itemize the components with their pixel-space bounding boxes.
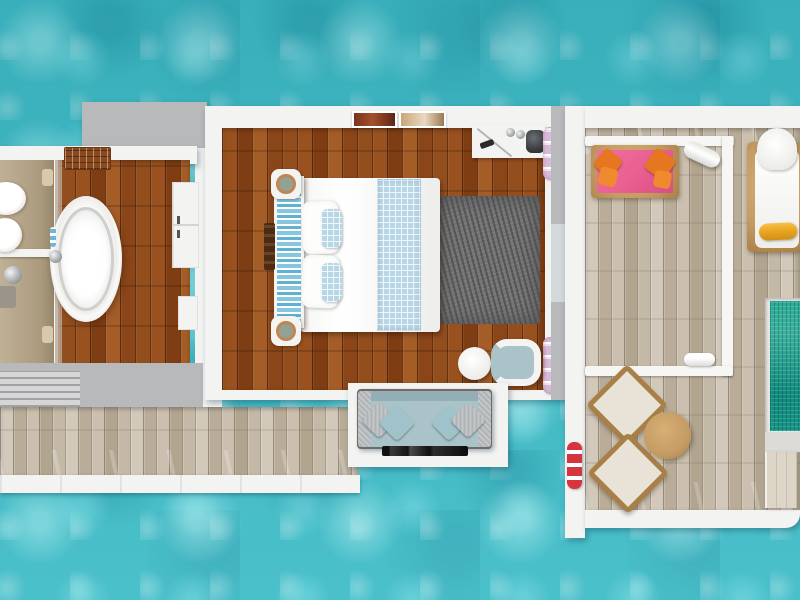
knob-ring-bottom [276, 321, 296, 341]
round-side-table [458, 347, 491, 380]
knob-ring-top [276, 174, 296, 194]
glass-door-handle-bottom [42, 326, 53, 343]
wall-cabinet [172, 182, 199, 268]
cabinet-handle-bottom [177, 230, 180, 238]
sofa-back-cushion [371, 391, 478, 401]
overwater-villa-floor-plan [0, 0, 800, 600]
railing-vertical [722, 136, 733, 376]
shower-head [4, 266, 22, 284]
storage-box [178, 296, 198, 330]
coffee-cup-2 [516, 130, 525, 139]
barrel-armchair [491, 339, 541, 386]
coffee-cup-1 [506, 128, 515, 137]
blue-accent-pillow-1 [321, 209, 342, 248]
headboard-ikat-pattern [277, 181, 301, 323]
wall-art-frame-red [352, 111, 397, 128]
round-coffee-table [644, 412, 691, 459]
bedpost-knob-top [271, 169, 301, 199]
checkered-runner [377, 179, 421, 331]
cabinet-divider [173, 224, 199, 226]
walkway-rafter-shadows [0, 450, 358, 476]
wall-art-frame-tan [399, 111, 446, 128]
plunge-pool [770, 301, 800, 431]
area-rug [437, 196, 540, 324]
shower-tray [0, 286, 16, 308]
bathtub-controls [50, 227, 56, 247]
cabinet-handle-top [177, 216, 180, 224]
red-striped-towel-roll [567, 442, 582, 489]
pool-south-ledge [765, 432, 800, 452]
orange-pillow-right-2 [653, 170, 673, 190]
roof-slab [82, 102, 207, 150]
walkway-fascia-edge [0, 475, 360, 493]
wall-tv [382, 446, 468, 456]
bathtub-faucet [49, 250, 62, 263]
towel-rack [64, 147, 111, 170]
blue-accent-pillow-2 [321, 263, 342, 302]
bedroom-east-glass-door [551, 224, 565, 302]
glass-door-handle-top [42, 169, 53, 186]
yellow-bolster-pillow [759, 222, 798, 241]
louvered-vent [0, 371, 80, 407]
luggage-rack [264, 223, 275, 270]
deck-towel [684, 353, 715, 366]
pool-step-box [765, 452, 797, 508]
sun-lounger-headrest [757, 128, 797, 170]
bedpost-knob-bottom [271, 316, 301, 346]
railing-middle [585, 366, 733, 376]
